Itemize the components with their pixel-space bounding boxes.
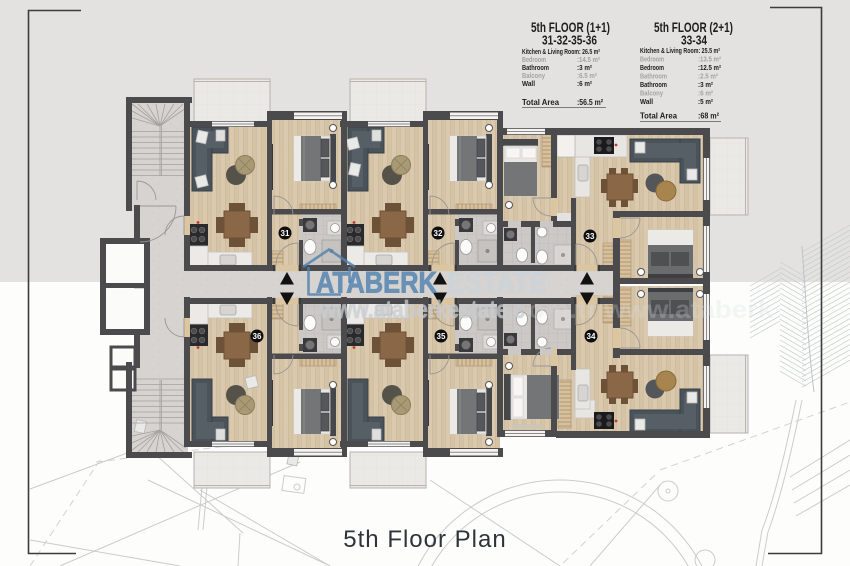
svg-text::68 m²: :68 m²	[698, 111, 719, 121]
svg-text:31-32-35-36: 31-32-35-36	[542, 33, 597, 48]
svg-text:Total Area: Total Area	[522, 97, 559, 107]
svg-text:ESTATE: ESTATE	[447, 267, 547, 300]
svg-text:www.ataberkestate.c: www.ataberkestate.c	[319, 296, 525, 324]
svg-text:Wall: Wall	[522, 79, 535, 88]
svg-text::56.5 m²: :56.5 m²	[577, 97, 603, 107]
svg-text:36: 36	[253, 332, 262, 341]
svg-text::5 m²: :5 m²	[698, 97, 713, 106]
svg-text::6 m²: :6 m²	[577, 79, 592, 88]
svg-text:om.tr www.ataberk: om.tr www.ataberk	[528, 296, 773, 324]
svg-text:5th Floor Plan: 5th Floor Plan	[343, 526, 506, 553]
svg-text:Wall: Wall	[640, 97, 653, 106]
svg-text:ATABERK: ATABERK	[316, 267, 437, 300]
svg-text:31: 31	[281, 229, 290, 238]
svg-text:Total Area: Total Area	[640, 111, 677, 121]
svg-text:35: 35	[437, 332, 446, 341]
svg-text:33: 33	[586, 232, 595, 241]
svg-text:34: 34	[587, 332, 596, 341]
svg-text:32: 32	[434, 229, 443, 238]
